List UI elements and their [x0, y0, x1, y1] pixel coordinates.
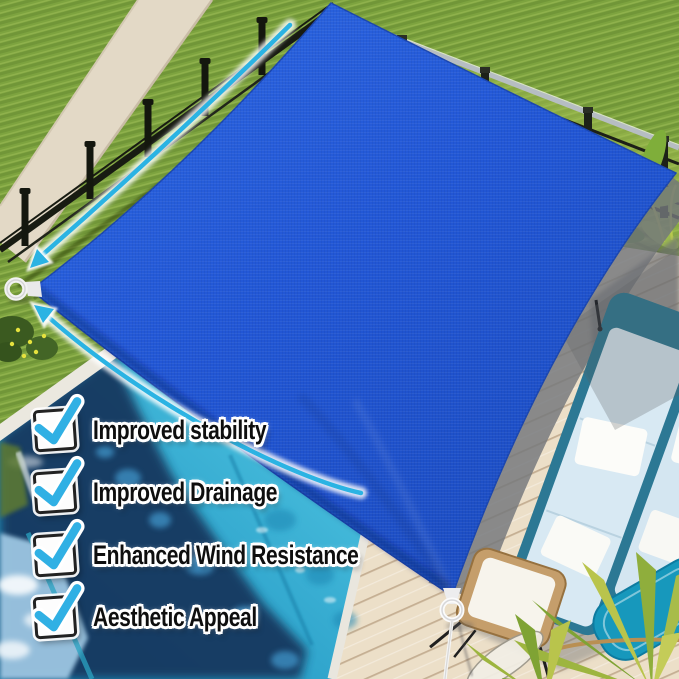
product-image: Improved stability Improved Drainage Enh…	[0, 0, 679, 679]
backyard-scene	[0, 0, 679, 679]
